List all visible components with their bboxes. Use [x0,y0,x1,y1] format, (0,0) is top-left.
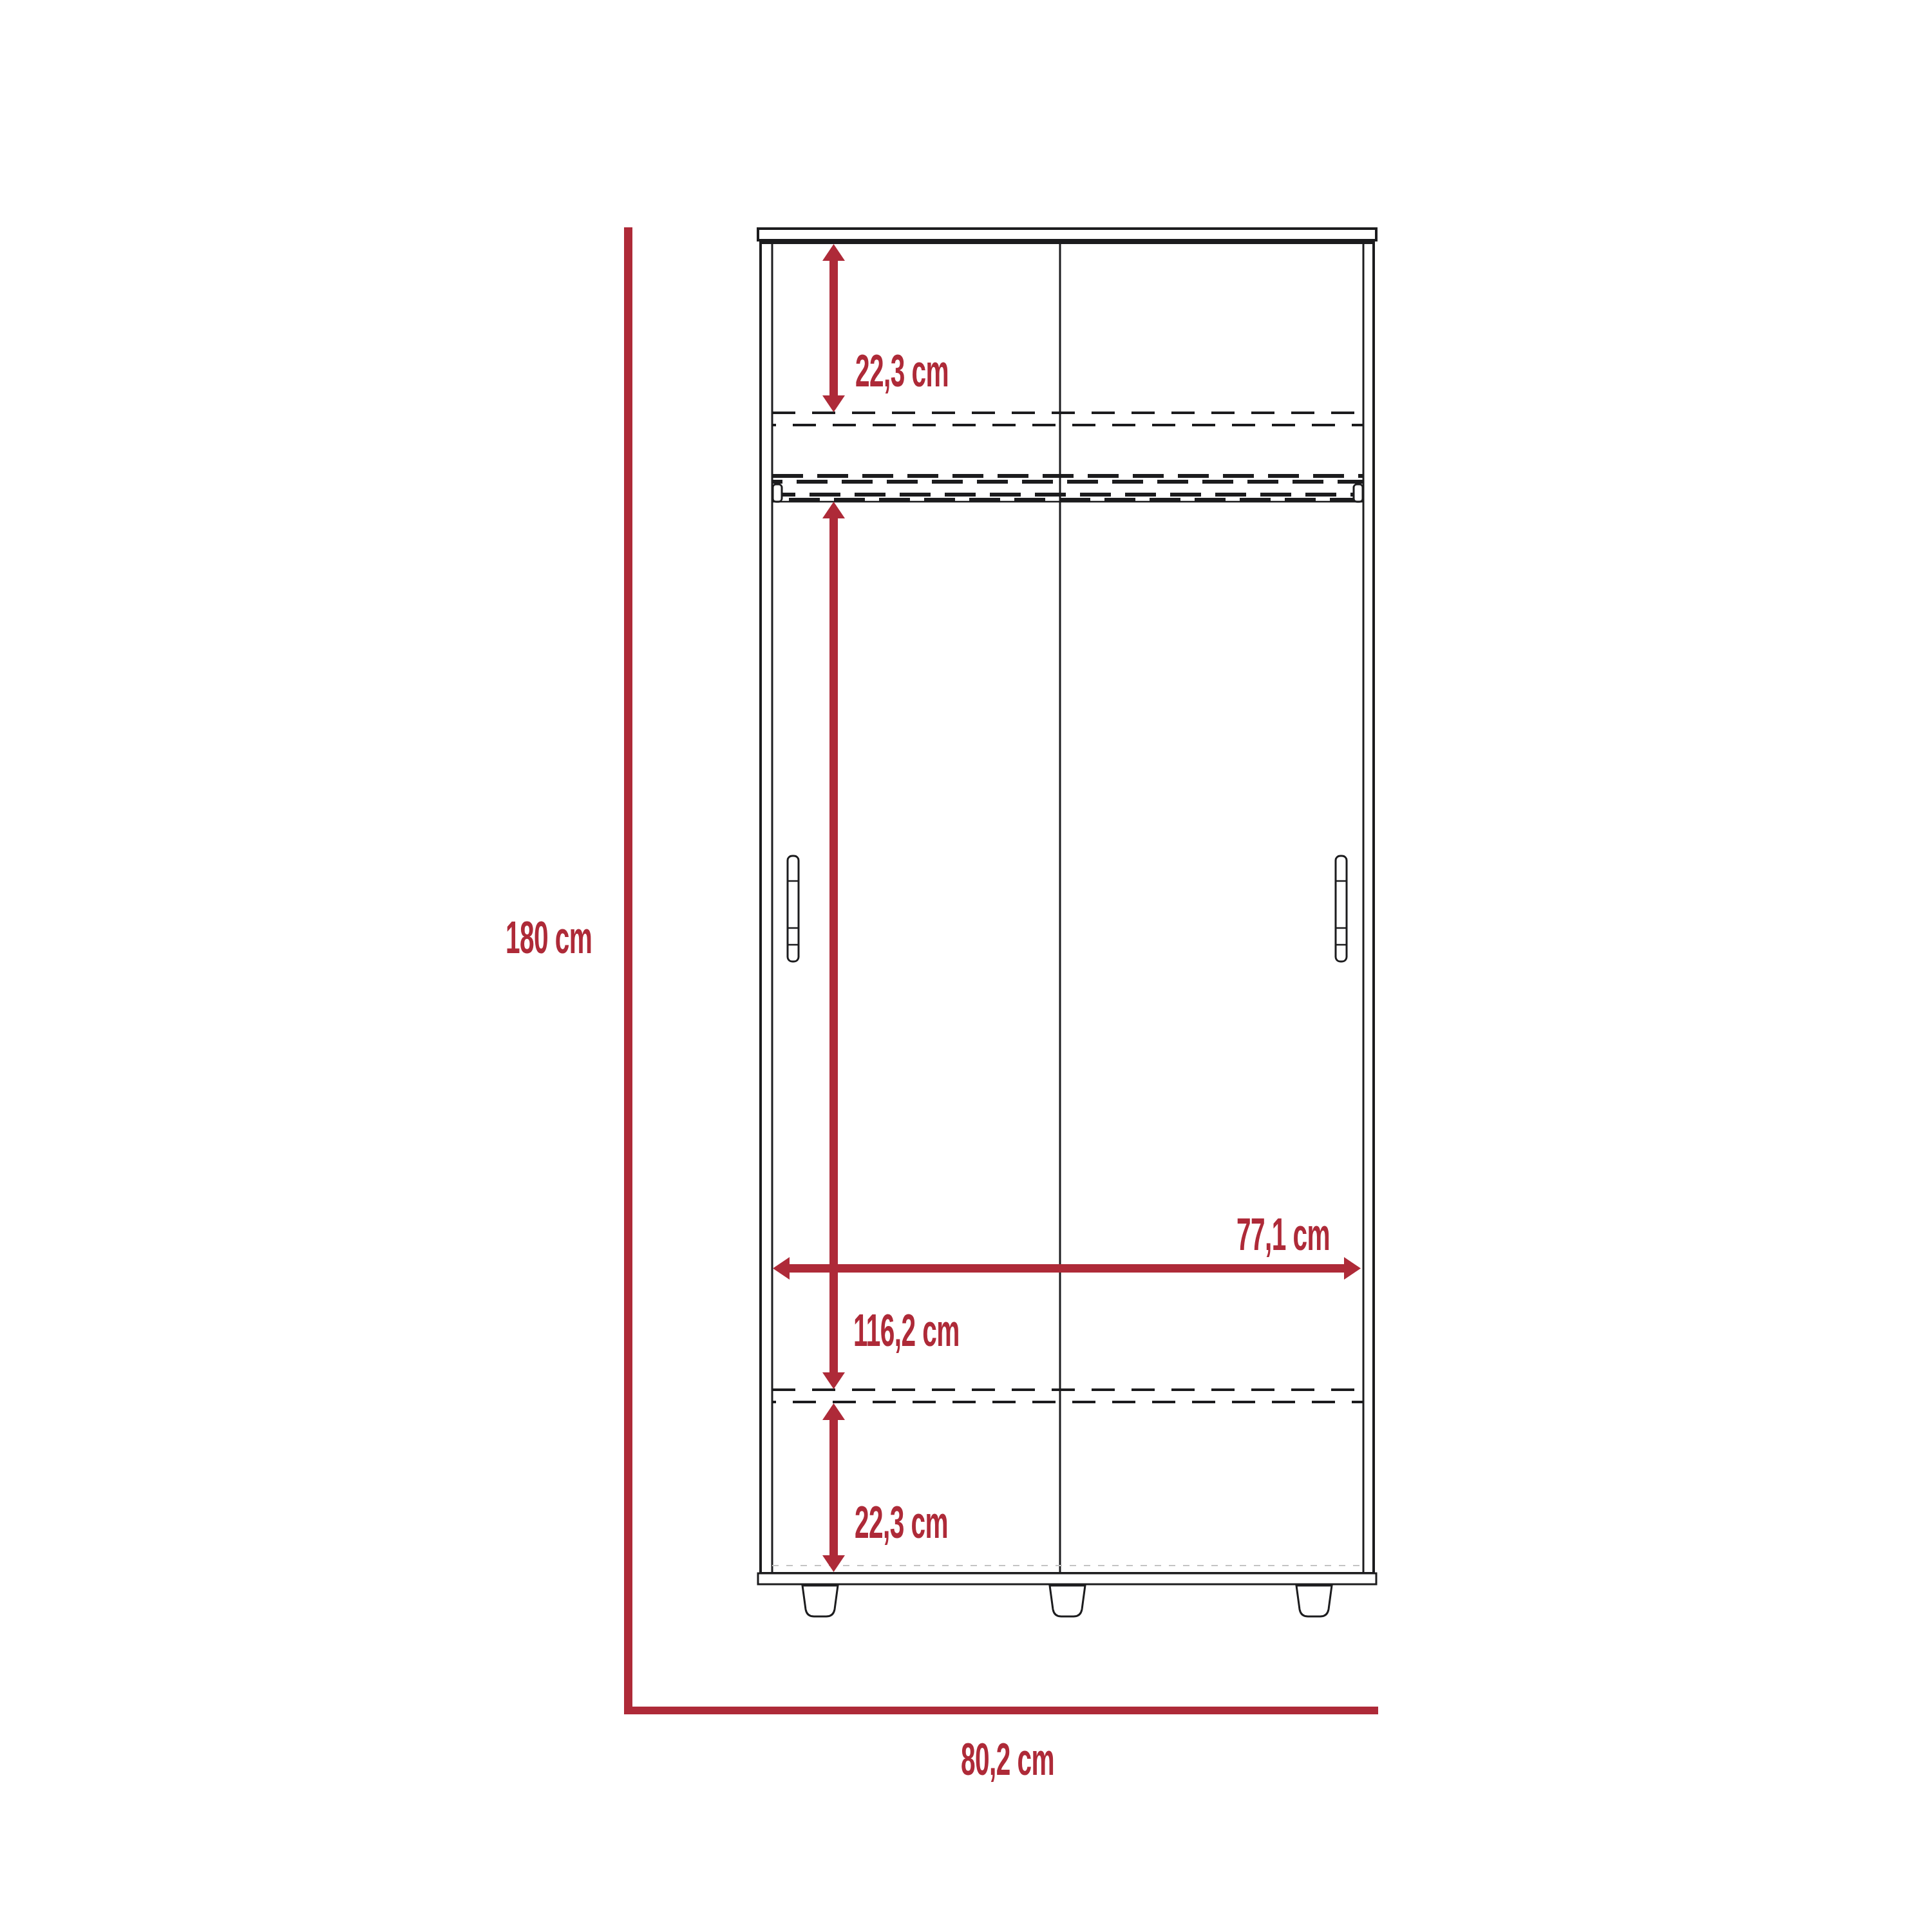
door-handle-right [1336,856,1347,961]
label-interior-width: 77,1 cm [1236,1212,1330,1257]
foot-middle [1050,1586,1085,1616]
label-overall-width: 80,2 cm [961,1737,1054,1782]
arrow-shaft [829,517,838,1374]
label-top-shelf-height: 22,3 cm [855,348,949,393]
foot-left [802,1586,838,1616]
foot-right [1296,1586,1332,1616]
wardrobe-body [761,243,1374,1573]
door-handle-left-bar [788,856,799,961]
label-hanging-section-height: 116,2 cm [853,1308,960,1353]
height-dimension-line [624,227,632,1714]
door-handle-left [788,856,799,961]
arrow-shaft [829,1417,838,1556]
label-bottom-section-height: 22,3 cm [855,1500,948,1545]
wardrobe-dimension-diagram: 22,3 cm 116,2 cm 22,3 cm 77,1 cm 180 cm … [0,0,1932,1932]
wardrobe [758,229,1376,1616]
diagram-linework [0,0,1932,1932]
arrow-shaft [829,260,838,398]
base-plinth [758,1573,1376,1584]
rod-bracket-right [1354,484,1363,502]
rod-bracket-left [773,484,782,502]
door-handle-right-bar [1336,856,1347,961]
label-overall-height: 180 cm [506,915,592,960]
wardrobe-top-cap [758,229,1376,240]
width-dimension-line [624,1707,1378,1714]
arrow-shaft [788,1264,1346,1273]
